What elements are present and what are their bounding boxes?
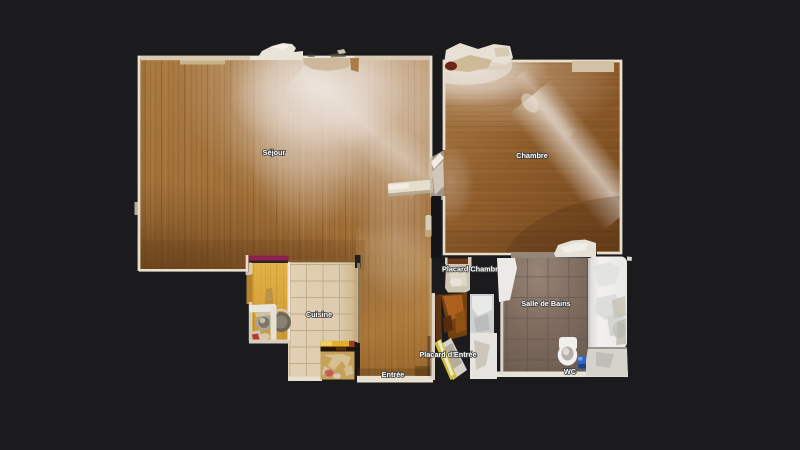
svg-text:Entrée: Entrée bbox=[382, 370, 405, 379]
svg-text:Placard d'Entrée: Placard d'Entrée bbox=[419, 350, 476, 359]
svg-text:WC: WC bbox=[564, 367, 577, 376]
svg-text:Cuisine: Cuisine bbox=[306, 310, 332, 319]
svg-text:Séjour: Séjour bbox=[263, 148, 286, 157]
svg-text:Placard Chambre: Placard Chambre bbox=[442, 265, 502, 274]
svg-text:Chambre: Chambre bbox=[516, 151, 548, 160]
svg-text:Salle de Bains: Salle de Bains bbox=[521, 299, 570, 308]
